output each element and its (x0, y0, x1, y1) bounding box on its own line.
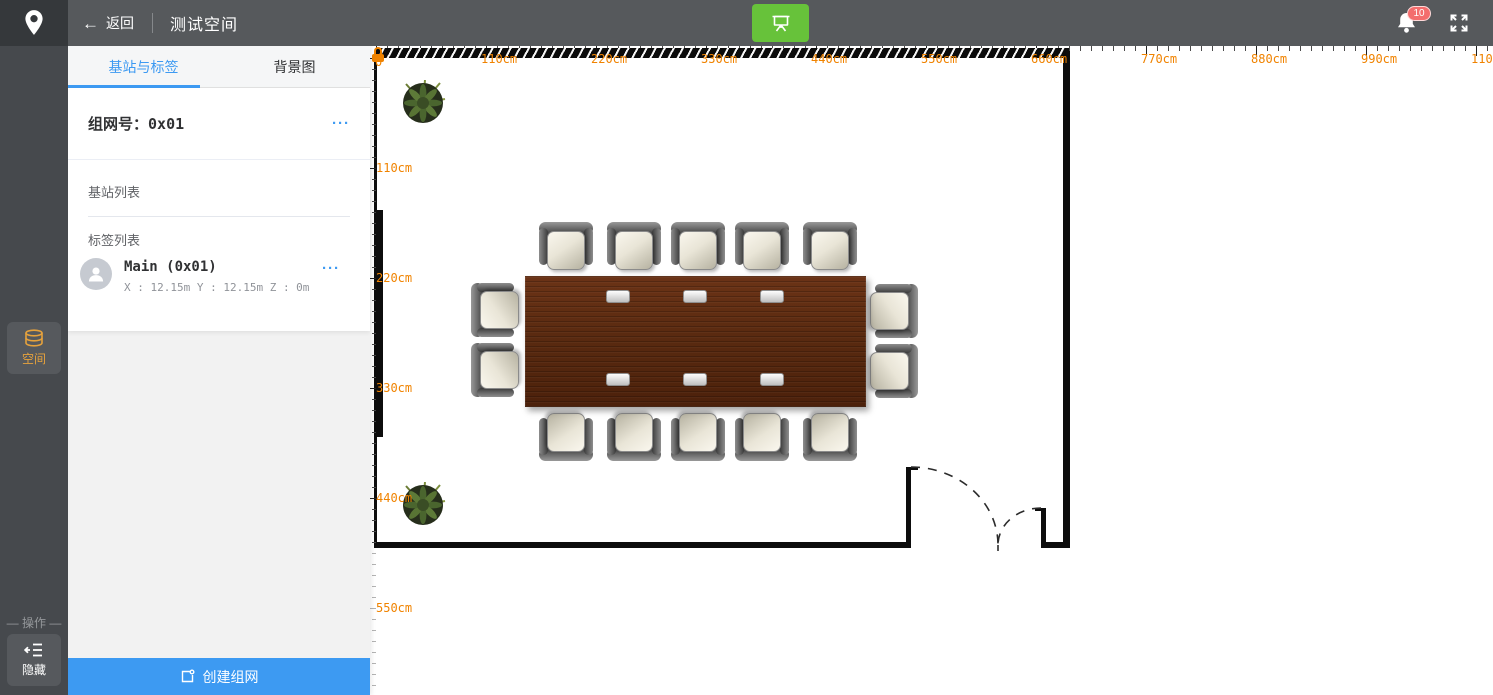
ruler-label-h: 990cm (1361, 52, 1397, 66)
ruler-label-v: 330cm (376, 381, 412, 395)
panel-tabbar: 基站与标签 背景图 (68, 46, 370, 88)
chair (471, 343, 519, 397)
ruler-tick-h (1091, 46, 1092, 51)
cable-grommet (683, 373, 707, 386)
wall-right (1063, 48, 1070, 548)
ruler-tick-v (372, 652, 376, 653)
ruler-tick-h (1410, 46, 1411, 51)
collapse-panel-icon (24, 642, 44, 658)
ruler-tick-v (372, 333, 376, 334)
chair-armrest (477, 328, 514, 337)
chair-seat (811, 413, 849, 452)
ruler-label-h: 880cm (1251, 52, 1287, 66)
tag-menu-button[interactable]: ··· (322, 264, 340, 274)
ruler-tick-h (1487, 46, 1488, 51)
ruler-tick-h (1190, 46, 1191, 51)
ruler-tick-v (372, 542, 376, 543)
wall-bottom-left (374, 542, 911, 548)
left-rail: 空间 — 操作 — 隐藏 (0, 46, 68, 695)
ruler-tick-h (1278, 46, 1279, 51)
ruler-tick-v (372, 157, 376, 158)
operation-divider-label: — 操作 — (0, 614, 68, 631)
ruler-tick-v (372, 421, 376, 422)
ruler-tick-v (372, 531, 376, 532)
ruler-tick-h (1465, 46, 1466, 51)
ruler-tick-v (372, 256, 376, 257)
chair-armrest (780, 228, 789, 265)
chair-armrest (477, 388, 514, 397)
ruler-label-h: 660cm (1031, 52, 1067, 66)
ruler-tick-v (372, 245, 376, 246)
chair-seat (615, 413, 653, 452)
door-jamb-left-cap (906, 467, 918, 470)
ruler-tick-v (372, 201, 376, 202)
ruler-label-h: 220cm (591, 52, 627, 66)
cable-grommet (606, 373, 630, 386)
ruler-tick-v (372, 234, 376, 235)
network-number-label: 组网号： (88, 113, 148, 134)
network-menu-button[interactable]: ··· (332, 119, 350, 129)
ruler-tick-h (1454, 46, 1455, 51)
cable-grommet (760, 290, 784, 303)
ruler-tick-h (1080, 46, 1081, 51)
conference-table (525, 276, 866, 407)
ruler-tick-v (372, 179, 376, 180)
top-bar: ← 返回 测试空间 10 (0, 0, 1493, 46)
ruler-tick-v (372, 663, 376, 664)
ruler-tick-h (1135, 46, 1136, 51)
chair-seat (870, 292, 909, 330)
chair-seat (743, 231, 781, 270)
projection-screen-icon (771, 13, 791, 33)
ruler-label-h: 330cm (701, 52, 737, 66)
chair (735, 413, 789, 461)
ruler-tick-h (1443, 46, 1444, 51)
chair-armrest (652, 418, 661, 455)
ruler-tick-v (372, 113, 376, 114)
chair (539, 413, 593, 461)
ruler-tick-h (1212, 46, 1213, 51)
ruler-tick-v (372, 553, 376, 554)
back-button[interactable]: ← 返回 (82, 0, 134, 46)
ruler-tick-v (372, 344, 376, 345)
rail-space-label: 空间 (22, 350, 46, 367)
chair (735, 222, 789, 270)
ruler-label-v: 220cm (376, 271, 412, 285)
chair-seat (679, 413, 717, 452)
ruler-tick-h (1124, 46, 1125, 51)
notifications-button[interactable]: 10 (1396, 11, 1422, 37)
back-arrow-icon: ← (82, 15, 99, 32)
ruler-tick-v (372, 410, 376, 411)
chair (671, 222, 725, 270)
ruler-tick-v (372, 289, 376, 290)
chair-seat (679, 231, 717, 270)
chair-armrest (875, 329, 912, 338)
ruler-tick-h (1223, 46, 1224, 51)
create-network-button[interactable]: 创建组网 (68, 658, 370, 695)
chair (607, 413, 661, 461)
side-panel: 基站与标签 背景图 组网号： 0x01 ··· 基站列表 标签列表 Main (… (68, 46, 370, 695)
chair-armrest (848, 418, 857, 455)
chair (870, 344, 918, 398)
network-number-value: 0x01 (148, 115, 184, 133)
ruler-label-v: 550cm (376, 601, 412, 615)
ruler-label-h: 1100cm (1471, 52, 1493, 66)
ruler-tick-v (372, 641, 376, 642)
ruler-tick-v (372, 366, 376, 367)
rail-item-hide-panel[interactable]: 隐藏 (7, 634, 61, 686)
ruler-tick-v (372, 432, 376, 433)
chair-armrest (848, 228, 857, 265)
ruler-label-v: 440cm (376, 491, 412, 505)
ruler-tick-h (1157, 46, 1158, 51)
fullscreen-expand-icon (1448, 12, 1470, 34)
floorplan-canvas[interactable]: 110cm220cm330cm440cm550cm660cm770cm880cm… (370, 46, 1493, 695)
chair-armrest (716, 418, 725, 455)
page-title: 测试空间 (170, 0, 238, 46)
door-jamb-right-cap (1035, 508, 1046, 511)
ruler-tick-h (1388, 46, 1389, 51)
create-network-icon (180, 669, 195, 684)
ruler-tick-v (372, 190, 376, 191)
app-logo[interactable] (0, 0, 68, 46)
ruler-tick-h (1289, 46, 1290, 51)
tag-list-item[interactable]: Main (0x01) X : 12.15m Y : 12.15m Z : 0m… (80, 258, 358, 294)
ruler-tick-v (372, 454, 376, 455)
ruler-tick-h (1322, 46, 1323, 51)
network-card: 组网号： 0x01 ··· 基站列表 标签列表 Main (0x01) X : … (68, 88, 370, 331)
ruler-tick-h (1333, 46, 1334, 51)
create-network-label: 创建组网 (203, 667, 259, 687)
ruler-tick-v (372, 630, 376, 631)
ruler-tick-v (372, 124, 376, 125)
ruler-tick-h (1421, 46, 1422, 51)
ruler-tick-h (1168, 46, 1169, 51)
ruler-tick-v (372, 223, 376, 224)
ruler-label-h: 110cm (481, 52, 517, 66)
ruler-tick-h (1377, 46, 1378, 51)
ruler-tick-v (372, 619, 376, 620)
ruler-tick-v (372, 377, 376, 378)
ruler-tick-v (372, 597, 376, 598)
chair-seat (870, 352, 909, 390)
chair-armrest (652, 228, 661, 265)
chair (471, 283, 519, 337)
chair-armrest (584, 228, 593, 265)
ruler-tick-v (372, 685, 376, 686)
door-jamb-right (1041, 508, 1046, 548)
cable-grommet (760, 373, 784, 386)
ruler-tick-h (1179, 46, 1180, 51)
back-label: 返回 (106, 13, 134, 33)
chair-seat (547, 413, 585, 452)
tab-stations-and-tags[interactable]: 基站与标签 (68, 46, 219, 87)
ruler-tick-h (1113, 46, 1114, 51)
ruler-tick-v (372, 674, 376, 675)
chair (870, 284, 918, 338)
network-number-row: 组网号： 0x01 ··· (68, 88, 370, 160)
ruler-label-h: 440cm (811, 52, 847, 66)
ruler-tick-h (1344, 46, 1345, 51)
rail-item-space[interactable]: 空间 (7, 322, 61, 374)
ruler-tick-v (372, 212, 376, 213)
chair-seat (615, 231, 653, 270)
ruler-tick-v (372, 80, 376, 81)
ruler-tick-v (372, 520, 376, 521)
ruler-tick-h (1267, 46, 1268, 51)
ruler-tick-h (1311, 46, 1312, 51)
chair (803, 413, 857, 461)
ruler-tick-v (372, 300, 376, 301)
avatar (80, 258, 112, 290)
section-divider (88, 216, 350, 217)
ruler-tick-h (1102, 46, 1103, 51)
ruler-tick-v (372, 102, 376, 103)
fullscreen-button[interactable] (1448, 12, 1470, 34)
ruler-tick-v (372, 443, 376, 444)
chair (671, 413, 725, 461)
ruler-tick-v (372, 146, 376, 147)
rail-hide-label: 隐藏 (22, 661, 46, 678)
chair-seat (480, 351, 519, 389)
ruler-tick-h (1399, 46, 1400, 51)
topbar-divider (152, 13, 153, 33)
chair-seat (811, 231, 849, 270)
door-jamb-left (906, 467, 911, 548)
ruler-tick-h (1069, 46, 1070, 51)
chair-armrest (716, 228, 725, 265)
ruler-tick-h (1300, 46, 1301, 51)
ruler-tick-v (372, 322, 376, 323)
chair-armrest (780, 418, 789, 455)
station-list-label: 基站列表 (88, 182, 350, 201)
ruler-tick-v (372, 509, 376, 510)
ruler-tick-v (372, 487, 376, 488)
chair (539, 222, 593, 270)
chair-seat (480, 291, 519, 329)
chair-seat (743, 413, 781, 452)
tab-background-image[interactable]: 背景图 (219, 46, 370, 87)
ruler-tick-v (372, 311, 376, 312)
ruler-tick-v (372, 575, 376, 576)
ruler-tick-v (372, 69, 376, 70)
cable-grommet (683, 290, 707, 303)
ruler-tick-h (1355, 46, 1356, 51)
ruler-origin-label: 0 (375, 55, 382, 69)
potted-plant (400, 80, 446, 126)
database-icon (23, 329, 45, 347)
ruler-tick-v (372, 267, 376, 268)
ruler-tick-v (372, 135, 376, 136)
ruler-tick-v (372, 586, 376, 587)
tag-name: Main (0x01) (124, 259, 309, 275)
chair-seat (547, 231, 585, 270)
presentation-mode-button[interactable] (752, 4, 809, 42)
ruler-tick-v (372, 355, 376, 356)
ruler-tick-v (372, 476, 376, 477)
notification-badge: 10 (1407, 6, 1431, 21)
chair-armrest (875, 389, 912, 398)
chair (803, 222, 857, 270)
tag-texts: Main (0x01) X : 12.15m Y : 12.15m Z : 0m (124, 258, 309, 294)
ruler-tick-h (1234, 46, 1235, 51)
chair-armrest (584, 418, 593, 455)
ruler-label-h: 550cm (921, 52, 957, 66)
ruler-tick-h (1432, 46, 1433, 51)
tag-list-label: 标签列表 (88, 230, 350, 249)
potted-plant (400, 482, 446, 528)
cable-grommet (606, 290, 630, 303)
ruler-tick-v (372, 91, 376, 92)
ruler-tick-v (372, 465, 376, 466)
ruler-tick-h (1245, 46, 1246, 51)
location-pin-icon (21, 9, 47, 37)
chair (607, 222, 661, 270)
ruler-label-v: 110cm (376, 161, 412, 175)
ruler-tick-h (1201, 46, 1202, 51)
tag-coordinates: X : 12.15m Y : 12.15m Z : 0m (124, 281, 309, 294)
ruler-tick-v (372, 564, 376, 565)
ruler-label-h: 770cm (1141, 52, 1177, 66)
ruler-tick-v (372, 399, 376, 400)
